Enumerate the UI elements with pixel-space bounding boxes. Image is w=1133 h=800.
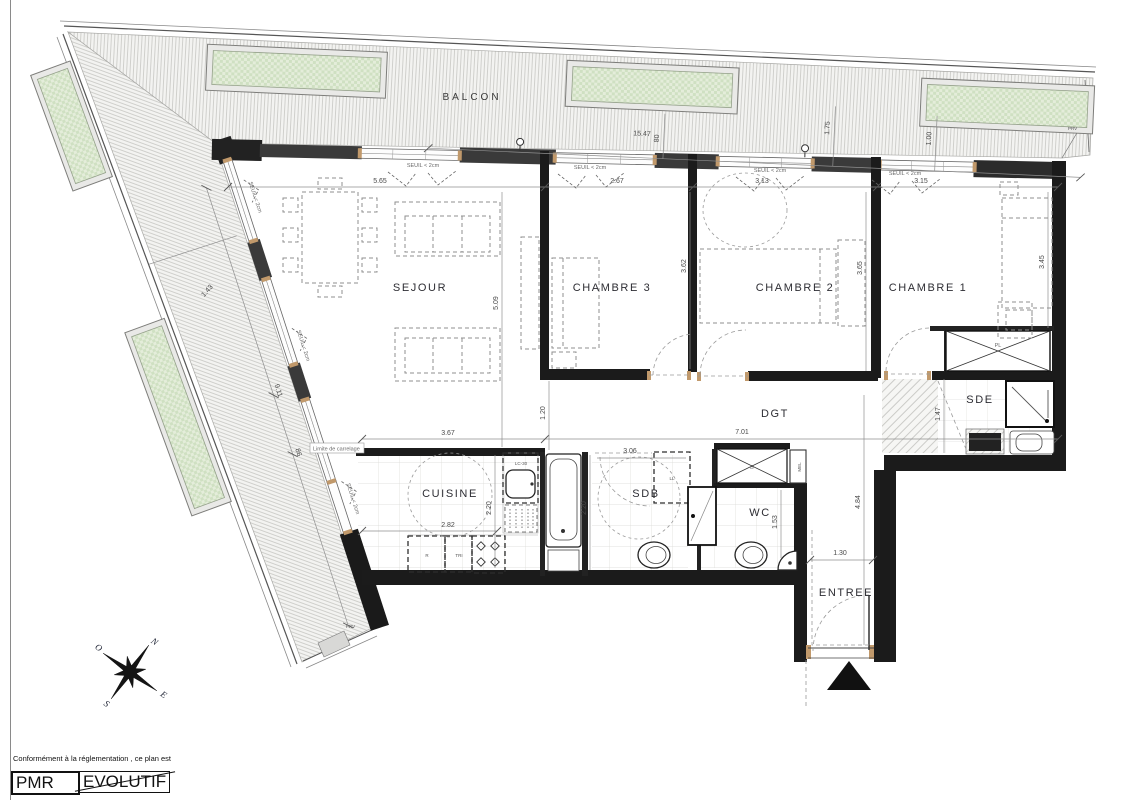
compass-south-label: S bbox=[102, 698, 112, 709]
mel-closet: MEL bbox=[790, 450, 806, 483]
dim-sdb-height: 2.20 bbox=[581, 501, 588, 515]
compass-star-icon bbox=[103, 645, 157, 699]
legend-table: PMR EVOLUTIF bbox=[11, 771, 170, 795]
chambre1-door-swing bbox=[886, 328, 930, 371]
media-unit bbox=[521, 237, 539, 349]
dim-kitchen-width2: 2.82 bbox=[441, 522, 455, 529]
dim-chambre3-height: 3.62 bbox=[681, 259, 688, 273]
bathtub bbox=[546, 454, 581, 571]
window bbox=[358, 148, 462, 160]
compass-east-label: E bbox=[158, 688, 169, 700]
floor-plan-page: SEUIL < 2cm SEUIL < 2cm SEUIL < 2cm 9.11… bbox=[0, 0, 1133, 800]
pl-label: PL bbox=[995, 343, 1002, 349]
compass-west-label: O bbox=[93, 642, 104, 654]
dim-kitchen-width: 3.67 bbox=[441, 430, 455, 437]
floor-plan-drawing: SEUIL < 2cm SEUIL < 2cm SEUIL < 2cm 9.11… bbox=[0, 0, 1133, 800]
sde-washbasin bbox=[1010, 431, 1054, 454]
regulation-note: Conformément à la réglementation , ce pl… bbox=[13, 754, 171, 763]
sde-threshold-hatch bbox=[882, 379, 938, 453]
room-label-chambre3: CHAMBRE 3 bbox=[573, 282, 652, 294]
sofa bbox=[395, 328, 500, 381]
room-label-balcon: BALCON bbox=[442, 92, 501, 103]
evolutif-cell: EVOLUTIF bbox=[80, 771, 170, 793]
chambre2-door-swing bbox=[700, 330, 746, 375]
dim-balcony-100: 1.00 bbox=[926, 132, 934, 146]
nightstand bbox=[552, 352, 576, 368]
limite-carrelage-label: Limite de carrelage bbox=[313, 447, 360, 453]
dim-entree-width: 1.30 bbox=[833, 550, 847, 557]
planter bbox=[206, 44, 388, 98]
sink-ref-label: LC-30 bbox=[515, 461, 528, 466]
mel-label: MEL bbox=[797, 462, 802, 472]
seuil-annotation: SEUIL < 2cm bbox=[407, 163, 440, 169]
room-label-sde: SDE bbox=[966, 394, 993, 406]
sofa bbox=[395, 202, 500, 256]
tri-label: TRI bbox=[455, 553, 462, 558]
seuil-annotation: SEUIL < 2cm bbox=[889, 171, 922, 177]
entrance-arrow-icon bbox=[827, 661, 871, 690]
sdb-wc-partition-door bbox=[688, 487, 716, 545]
room-label-cuisine: CUISINE bbox=[422, 488, 478, 500]
dim-chambre1-height: 3.45 bbox=[1039, 255, 1046, 269]
nightstand bbox=[1000, 182, 1018, 195]
seuil-annotation: SEUIL < 2cm bbox=[574, 165, 607, 171]
room-label-sejour: SEJOUR bbox=[393, 282, 447, 294]
dim-kitchen-height: 2.20 bbox=[486, 501, 493, 515]
chambre3-furniture bbox=[552, 258, 693, 375]
dim-chambre3-width: 2.67 bbox=[610, 178, 624, 185]
sde-shower bbox=[1006, 381, 1054, 427]
dim-sejour-width: 5.65 bbox=[373, 178, 387, 185]
chambre3-door-swing bbox=[653, 334, 693, 375]
room-label-wc: WC bbox=[749, 507, 771, 519]
dim-balcony-175: 1.75 bbox=[824, 121, 832, 135]
dim-sdb-width: 3.06 bbox=[623, 448, 637, 455]
room-label-chambre2: CHAMBRE 2 bbox=[756, 282, 835, 294]
prv-label: PRV bbox=[346, 624, 355, 629]
dim-dgt-length: 7.01 bbox=[735, 429, 749, 436]
b-label: B bbox=[750, 465, 754, 471]
bed bbox=[1002, 198, 1052, 308]
wardrobe bbox=[838, 240, 865, 326]
dim-balcony-length: 15.47 bbox=[633, 130, 651, 138]
dim-sde-width: 1.47 bbox=[935, 407, 942, 421]
sdb-wc-pan bbox=[638, 542, 670, 568]
seuil-annotation: SEUIL < 2cm bbox=[754, 168, 787, 174]
compass-north-label: N bbox=[149, 635, 161, 648]
dim-wc-depth: 1.53 bbox=[772, 515, 779, 529]
dim-sejour-height: 5.09 bbox=[493, 296, 500, 310]
vent-icon bbox=[801, 145, 808, 158]
dim-chambre1-width: 3.15 bbox=[914, 178, 928, 185]
dim-chambre2-width: 3.13 bbox=[755, 178, 769, 185]
dim-chambre2-height: 3.65 bbox=[857, 261, 864, 275]
compass-rose: N E S O bbox=[93, 635, 169, 709]
pmr-cell: PMR bbox=[11, 771, 80, 795]
wc-pan bbox=[735, 542, 767, 568]
room-label-entree: ENTREE bbox=[819, 587, 873, 599]
room-label-dgt: DGT bbox=[761, 408, 789, 420]
chambre2-furniture bbox=[700, 173, 865, 375]
bed bbox=[552, 258, 599, 348]
sejour-furniture bbox=[283, 178, 539, 381]
prv-label: PRV bbox=[1068, 126, 1077, 131]
window bbox=[716, 156, 815, 168]
room-label-sdb: SDB bbox=[632, 488, 659, 500]
room-label-chambre1: CHAMBRE 1 bbox=[889, 282, 968, 294]
sde-wc-unit bbox=[966, 429, 1004, 454]
dim-balcony-depth: 80 bbox=[654, 134, 661, 142]
entrance-door-swing bbox=[813, 595, 869, 651]
dim-entree-height: 4.84 bbox=[855, 495, 862, 509]
dim-dgt-width: 1.20 bbox=[540, 406, 547, 420]
planter bbox=[565, 60, 739, 114]
dining-table bbox=[302, 192, 358, 283]
b-closet: B bbox=[717, 449, 787, 483]
